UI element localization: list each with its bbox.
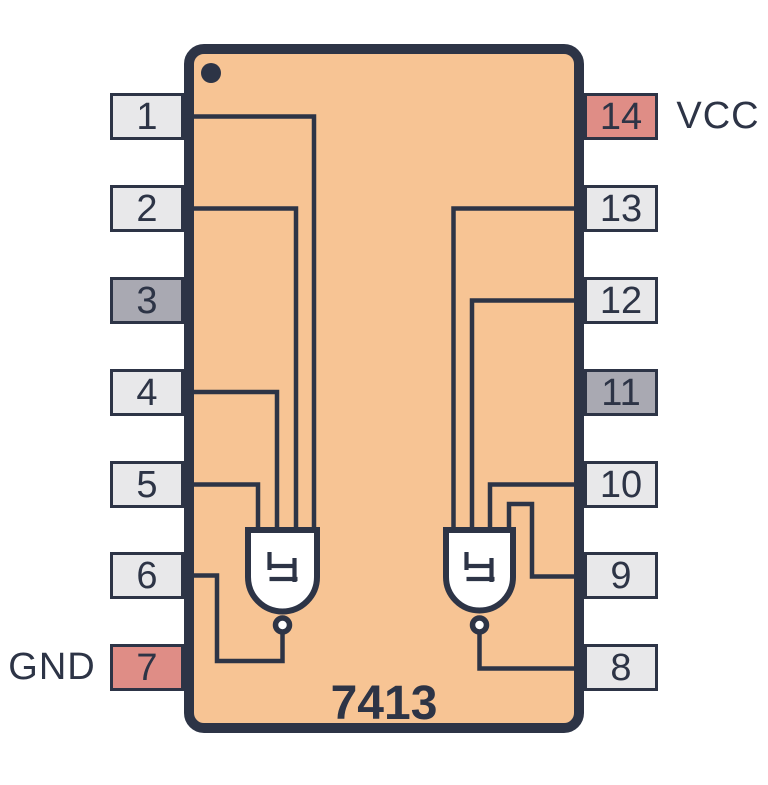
pin-6: 6 — [110, 552, 184, 599]
nand-gate-1-body — [248, 530, 317, 612]
gnd-label: GND — [2, 644, 102, 691]
nand-gate-2-body — [446, 530, 513, 611]
pin-4: 4 — [110, 369, 184, 416]
nand-gate-2-inverter-bubble — [473, 618, 487, 632]
pin-13: 13 — [584, 185, 658, 232]
pin-3: 3 — [110, 277, 184, 324]
pinout-diagram: 1 2 3 4 5 6 7 14 13 12 11 10 9 8 GND VCC… — [0, 0, 768, 785]
pin-8: 8 — [584, 644, 658, 691]
pin-9: 9 — [584, 552, 658, 599]
pin-1: 1 — [110, 93, 184, 140]
pin1-indicator-dot — [201, 63, 221, 83]
pin-10: 10 — [584, 461, 658, 508]
pin-2: 2 — [110, 185, 184, 232]
nand-gate-1-inverter-bubble — [276, 618, 290, 632]
pin-5: 5 — [110, 461, 184, 508]
pin-12: 12 — [584, 277, 658, 324]
pin-11: 11 — [584, 369, 658, 416]
chip-part-number: 7413 — [184, 676, 584, 731]
vcc-label: VCC — [668, 93, 768, 140]
pin-14: 14 — [584, 93, 658, 140]
pin-7: 7 — [110, 644, 184, 691]
chip-body — [189, 49, 579, 728]
